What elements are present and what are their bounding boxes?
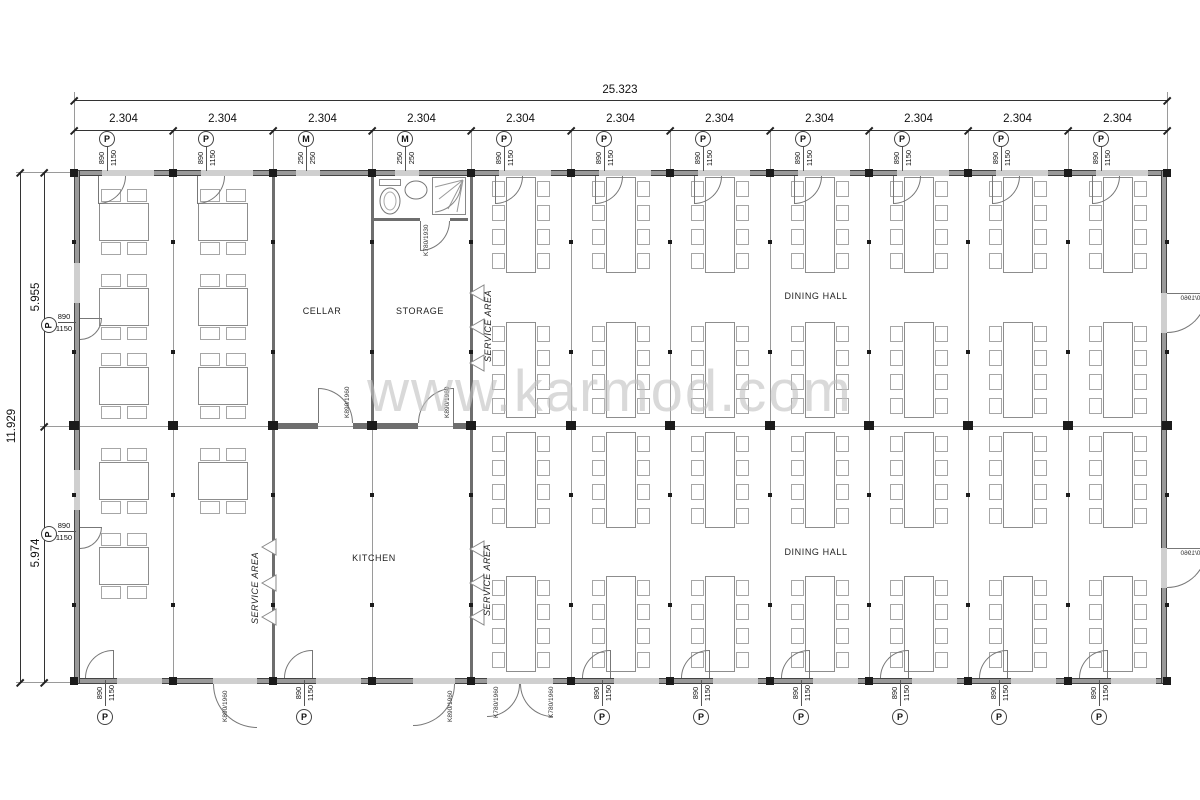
chair [935,508,948,524]
chair [935,436,948,452]
column-marker [171,493,175,497]
window-size-label: 250 [407,145,417,171]
chair [101,406,121,419]
door-size-label: K780/1930 [423,220,433,256]
dimension-divider [701,680,702,706]
chair [637,484,650,500]
chair [637,253,650,269]
chair [736,253,749,269]
column-marker [271,603,275,607]
chair [492,229,505,245]
chair [492,253,505,269]
column-marker [966,493,970,497]
window-opening [74,263,80,303]
column-marker [370,240,374,244]
chair [890,229,903,245]
chair [736,628,749,644]
chair [537,652,550,668]
chair [592,229,605,245]
column-marker [171,240,175,244]
chair [736,652,749,668]
column-marker [1165,493,1169,497]
chair [1134,326,1147,342]
dimension-divider [58,531,76,532]
chair [492,508,505,524]
chair [226,501,246,514]
column-marker [567,677,575,685]
chair [890,628,903,644]
window-size-label: 1150 [904,145,914,171]
dining-table [1003,322,1033,418]
dining-table [606,432,636,528]
chair [1134,484,1147,500]
chair [989,580,1002,596]
window-symbol-P: P [693,709,709,725]
window-size-label: 250 [308,145,318,171]
column-marker [168,421,178,430]
column-marker [567,169,575,177]
chair [836,181,849,197]
window-size-label: 1150 [803,680,813,706]
dimension-bay-label: 2.304 [571,113,670,127]
chair [935,181,948,197]
chair [836,580,849,596]
chair [836,604,849,620]
window-symbol-P: P [596,131,612,147]
column-marker [964,169,972,177]
floor-plan-canvas: 25.323 11.929 5.955 5.974 CELLAR STORAGE… [0,0,1200,800]
chair [691,205,704,221]
chair [791,604,804,620]
column-marker [1066,350,1070,354]
column-marker [469,240,473,244]
chair [890,326,903,342]
chair [592,326,605,342]
dining-table [1003,432,1033,528]
door-size-label: K890/1960 [1172,295,1200,309]
door-size-label: K780/1960 [548,684,558,718]
chair [1034,229,1047,245]
chair [935,580,948,596]
column-marker [768,493,772,497]
column-marker [768,350,772,354]
window-size-label: 890 [592,680,602,706]
column-marker [766,677,774,685]
dimension-divider [1001,145,1002,171]
chair [691,508,704,524]
window-symbol-P: P [695,131,711,147]
chair [1034,484,1047,500]
watermark: www.karmod.com [260,358,960,425]
dimension-divider [107,145,108,171]
column-marker [569,350,573,354]
column-marker [370,350,374,354]
dimension-total-width: 25.323 [560,84,680,96]
shower-icon [432,177,466,215]
chair [736,229,749,245]
dimension-upper-depth: 5.955 [30,269,42,325]
chair [592,580,605,596]
toilet-tank-icon [379,179,401,186]
window-symbol-M: M [298,131,314,147]
dimension-divider [206,145,207,171]
chair [537,326,550,342]
chair [127,242,147,255]
chair [637,604,650,620]
door-swing-arc [487,684,520,717]
chair [836,460,849,476]
window-size-label: 890 [97,145,107,171]
chair [736,181,749,197]
chair [1134,436,1147,452]
window-opening [614,678,659,684]
column-marker [72,240,76,244]
small-table [99,367,149,405]
chair [1034,326,1047,342]
door-swing-arc [80,318,102,340]
chair [637,508,650,524]
chair [637,652,650,668]
dimension-divider [801,680,802,706]
door-size-label: K890/1960 [1172,550,1200,564]
chair [1134,205,1147,221]
chair [691,229,704,245]
chair [101,353,121,366]
chair [637,436,650,452]
column-marker [467,677,475,685]
column-marker [867,603,871,607]
floor-plan: 25.323 11.929 5.955 5.974 CELLAR STORAGE… [0,0,1200,800]
chair [101,274,121,287]
chair [836,436,849,452]
window-symbol-P: P [41,526,57,542]
column-marker [768,603,772,607]
column-marker [768,240,772,244]
chair [836,253,849,269]
extension-line [273,131,274,170]
window-symbol-P: P [1093,131,1109,147]
column-marker [964,677,972,685]
window-symbol-P: P [296,709,312,725]
chair [791,229,804,245]
dimension-divider [900,680,901,706]
window-size-label: 1150 [107,680,117,706]
window-symbol-P: P [993,131,1009,147]
chair [890,205,903,221]
chair [226,327,246,340]
column-marker [1063,421,1073,430]
column-marker [269,677,277,685]
chair [989,253,1002,269]
dimension-total-depth: 11.929 [6,396,18,456]
column-marker [569,603,573,607]
chair [836,229,849,245]
extension-line [1068,131,1069,170]
module-line [74,426,1167,427]
chair [200,406,220,419]
chair [592,205,605,221]
chair [200,501,220,514]
chair [691,484,704,500]
door-leaf [809,650,810,678]
chair [537,460,550,476]
chair [127,406,147,419]
dimension-bay-label: 2.304 [968,113,1067,127]
chair [989,604,1002,620]
dimension-divider [604,145,605,171]
column-marker [766,169,774,177]
chair [691,604,704,620]
dimension-bay-label: 2.304 [173,113,272,127]
chair [935,628,948,644]
chair [127,327,147,340]
toilet-bowl-icon [384,192,396,210]
chair [1134,253,1147,269]
window-size-label: 1150 [1001,680,1011,706]
window-symbol-P: P [97,709,113,725]
chair [1134,580,1147,596]
chair [592,436,605,452]
door-leaf [908,650,909,678]
chair [791,628,804,644]
chair [791,508,804,524]
chair [1134,398,1147,414]
column-marker [966,350,970,354]
chair [592,484,605,500]
chair [537,181,550,197]
chair [736,484,749,500]
chair [791,436,804,452]
chair [989,398,1002,414]
column-marker [666,169,674,177]
column-marker [865,169,873,177]
column-marker [1165,350,1169,354]
dimension-divider [504,145,505,171]
window-opening [713,678,758,684]
column-marker [865,677,873,685]
window-size-label: 890 [95,680,105,706]
window-size-label: 1150 [1003,145,1013,171]
chair [1089,229,1102,245]
door-swing-arc [85,650,113,678]
chair [1034,508,1047,524]
chair [492,326,505,342]
window-size-label: 890 [1089,680,1099,706]
column-marker [271,493,275,497]
column-marker [1165,240,1169,244]
chair [537,508,550,524]
chair [1089,398,1102,414]
chair [637,326,650,342]
chair [1089,374,1102,390]
door-swing-arc [80,527,102,549]
chair [935,484,948,500]
column-marker [867,240,871,244]
extension-line [471,131,472,170]
chair [637,580,650,596]
chair [736,205,749,221]
chair [890,460,903,476]
door-swing-arc [197,176,225,204]
chair [1034,253,1047,269]
window-size-label: 1150 [306,680,316,706]
chair [791,460,804,476]
chair [637,628,650,644]
window-size-label: 1150 [606,145,616,171]
chair [1089,508,1102,524]
chair [101,501,121,514]
chair [226,274,246,287]
window-size-label: 890 [791,680,801,706]
window-symbol-P: P [99,131,115,147]
window-opening [912,678,957,684]
chair [935,604,948,620]
dimension-bay-label: 2.304 [372,113,471,127]
column-marker [1165,603,1169,607]
chair [791,205,804,221]
window-symbol-P: P [198,131,214,147]
chair [989,229,1002,245]
chair [1034,350,1047,366]
chair [492,580,505,596]
chair [1034,580,1047,596]
door-swing-arc [880,650,908,678]
column-marker [1163,169,1171,177]
dimension-divider [58,322,76,323]
column-marker [469,350,473,354]
chair [1089,326,1102,342]
dimension-bay-label: 2.304 [273,113,372,127]
small-table [198,203,248,241]
toilet-icon [380,188,400,214]
window-symbol-P: P [894,131,910,147]
window-opening [813,678,858,684]
door-size-label: K890/1960 [222,684,232,722]
room-label-cellar: CELLAR [282,306,362,316]
column-marker [1162,421,1172,430]
window-size-label: 890 [693,145,703,171]
door-leaf [1007,650,1008,678]
column-marker [70,169,78,177]
door-swing-arc [284,650,312,678]
chair [592,628,605,644]
chair [890,436,903,452]
chair [127,586,147,599]
small-table [99,547,149,585]
chair [989,460,1002,476]
dimension-divider [902,145,903,171]
window-symbol-P: P [1091,709,1107,725]
small-table [198,367,248,405]
window-symbol-P: P [795,131,811,147]
chair [492,604,505,620]
column-marker [70,677,78,685]
column-marker [271,240,275,244]
extension-line [869,131,870,170]
chair [691,436,704,452]
chair [101,533,121,546]
extension-line [670,131,671,170]
column-marker [467,169,475,177]
window-size-label: 1150 [705,145,715,171]
window-size-label: 1150 [1101,680,1111,706]
window-symbol-P: P [892,709,908,725]
chair [200,274,220,287]
dimension-divider [1101,145,1102,171]
chair [691,580,704,596]
dimension-divider [602,680,603,706]
window-size-label: 890 [890,680,900,706]
window-size-label: 890 [196,145,206,171]
extension-line [770,131,771,170]
column-marker [668,493,672,497]
sink-icon [405,181,427,199]
window-size-label: 1150 [604,680,614,706]
chair [989,436,1002,452]
column-marker [569,240,573,244]
dimension-divider [405,145,406,171]
window-size-label: 1150 [805,145,815,171]
chair [101,327,121,340]
chair [127,189,147,202]
small-table [99,288,149,326]
chair [592,253,605,269]
window-symbol-P: P [496,131,512,147]
room-label-dining-hall-lower: DINING HALL [776,547,856,557]
chair [226,406,246,419]
chair [1134,652,1147,668]
chair [492,205,505,221]
chair [989,374,1002,390]
chair [836,326,849,342]
chair [537,580,550,596]
chair [1089,484,1102,500]
window-size-label: 890 [892,145,902,171]
dining-table [506,432,536,528]
column-marker [668,350,672,354]
column-marker [569,493,573,497]
window-size-label: 890 [594,145,604,171]
chair [1034,205,1047,221]
chair [1134,628,1147,644]
column-marker [666,677,674,685]
small-table [198,288,248,326]
chair [1034,374,1047,390]
small-table [198,462,248,500]
dimension-line [74,100,1167,101]
chair [1134,350,1147,366]
window-size-label: 1150 [1103,145,1113,171]
chair [492,652,505,668]
dimension-bay-label: 2.304 [670,113,769,127]
dimension-bay-label: 2.304 [1068,113,1167,127]
extension-line [173,131,174,170]
door-swing-arc [979,650,1007,678]
chair [736,508,749,524]
chair [736,436,749,452]
window-symbol-P: P [991,709,1007,725]
window-size-label: 890 [1091,145,1101,171]
chair [836,628,849,644]
column-marker [171,350,175,354]
window-opening [117,678,162,684]
dimension-divider [306,145,307,171]
chair [226,242,246,255]
window-size-label: 250 [395,145,405,171]
door-size-label: K780/1960 [493,684,503,718]
chair [537,436,550,452]
chair [1089,253,1102,269]
